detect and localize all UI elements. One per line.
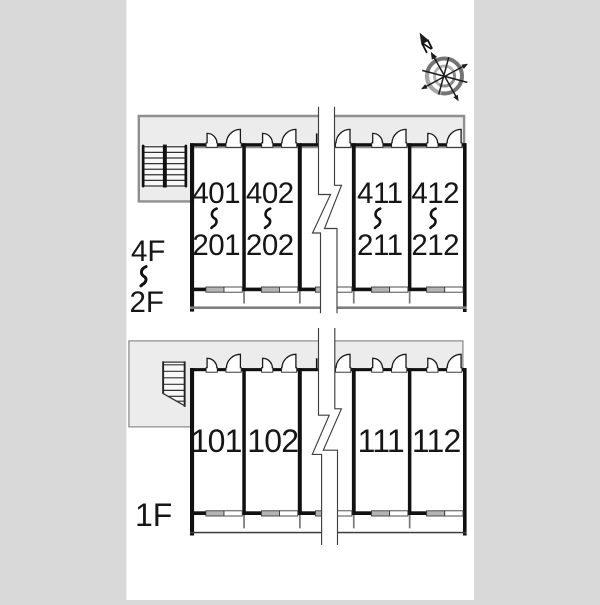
svg-text:2F: 2F: [130, 286, 164, 319]
svg-text:212: 212: [411, 229, 459, 262]
svg-text:4F: 4F: [131, 235, 165, 268]
svg-text:402: 402: [246, 177, 294, 210]
svg-text:1F: 1F: [135, 497, 172, 533]
svg-text:201: 201: [192, 229, 240, 262]
svg-text:102: 102: [247, 423, 298, 459]
svg-text:412: 412: [411, 177, 459, 210]
svg-text:401: 401: [192, 177, 240, 210]
svg-text:211: 211: [357, 229, 403, 262]
svg-text:112: 112: [412, 423, 461, 459]
svg-text:411: 411: [357, 177, 403, 210]
svg-text:101: 101: [191, 423, 242, 459]
svg-text:111: 111: [358, 423, 404, 459]
svg-text:202: 202: [246, 229, 294, 262]
